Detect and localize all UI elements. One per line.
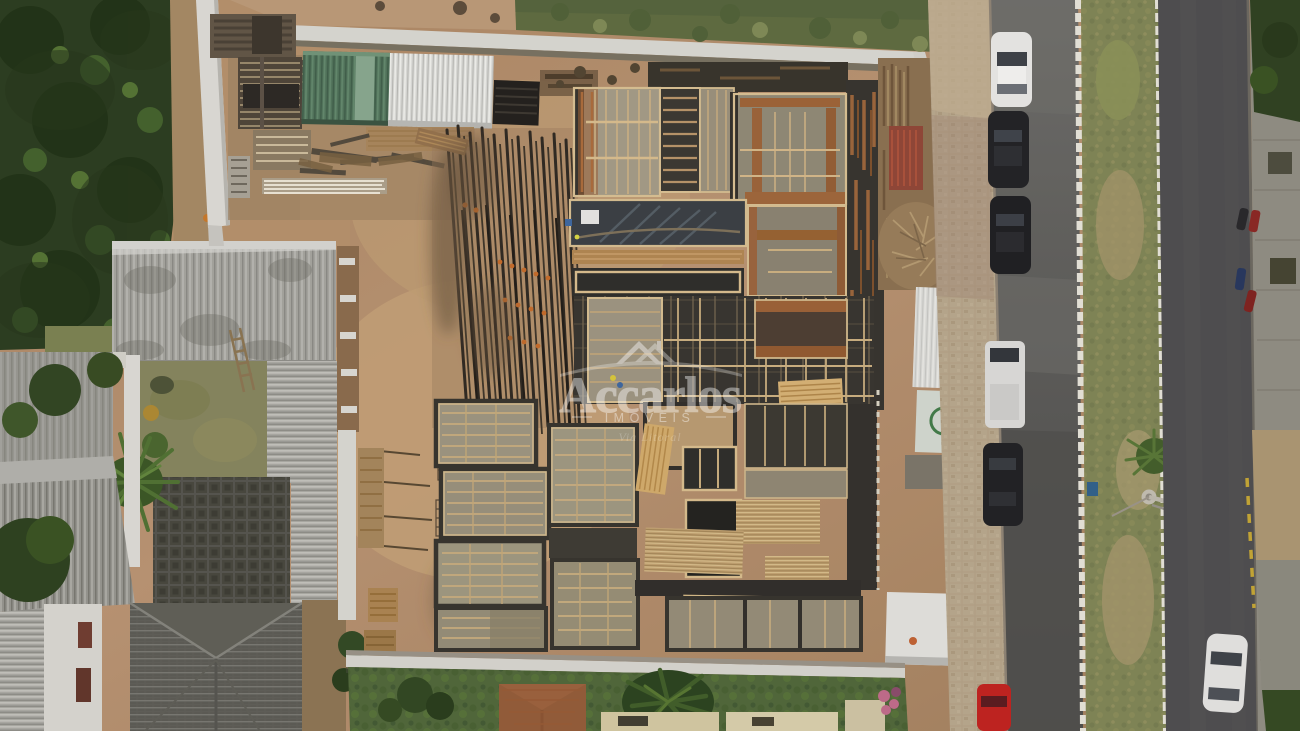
svg-text:IMÓVEIS: IMÓVEIS [605,410,696,425]
svg-text:Via Litoral: Via Litoral [618,430,681,444]
